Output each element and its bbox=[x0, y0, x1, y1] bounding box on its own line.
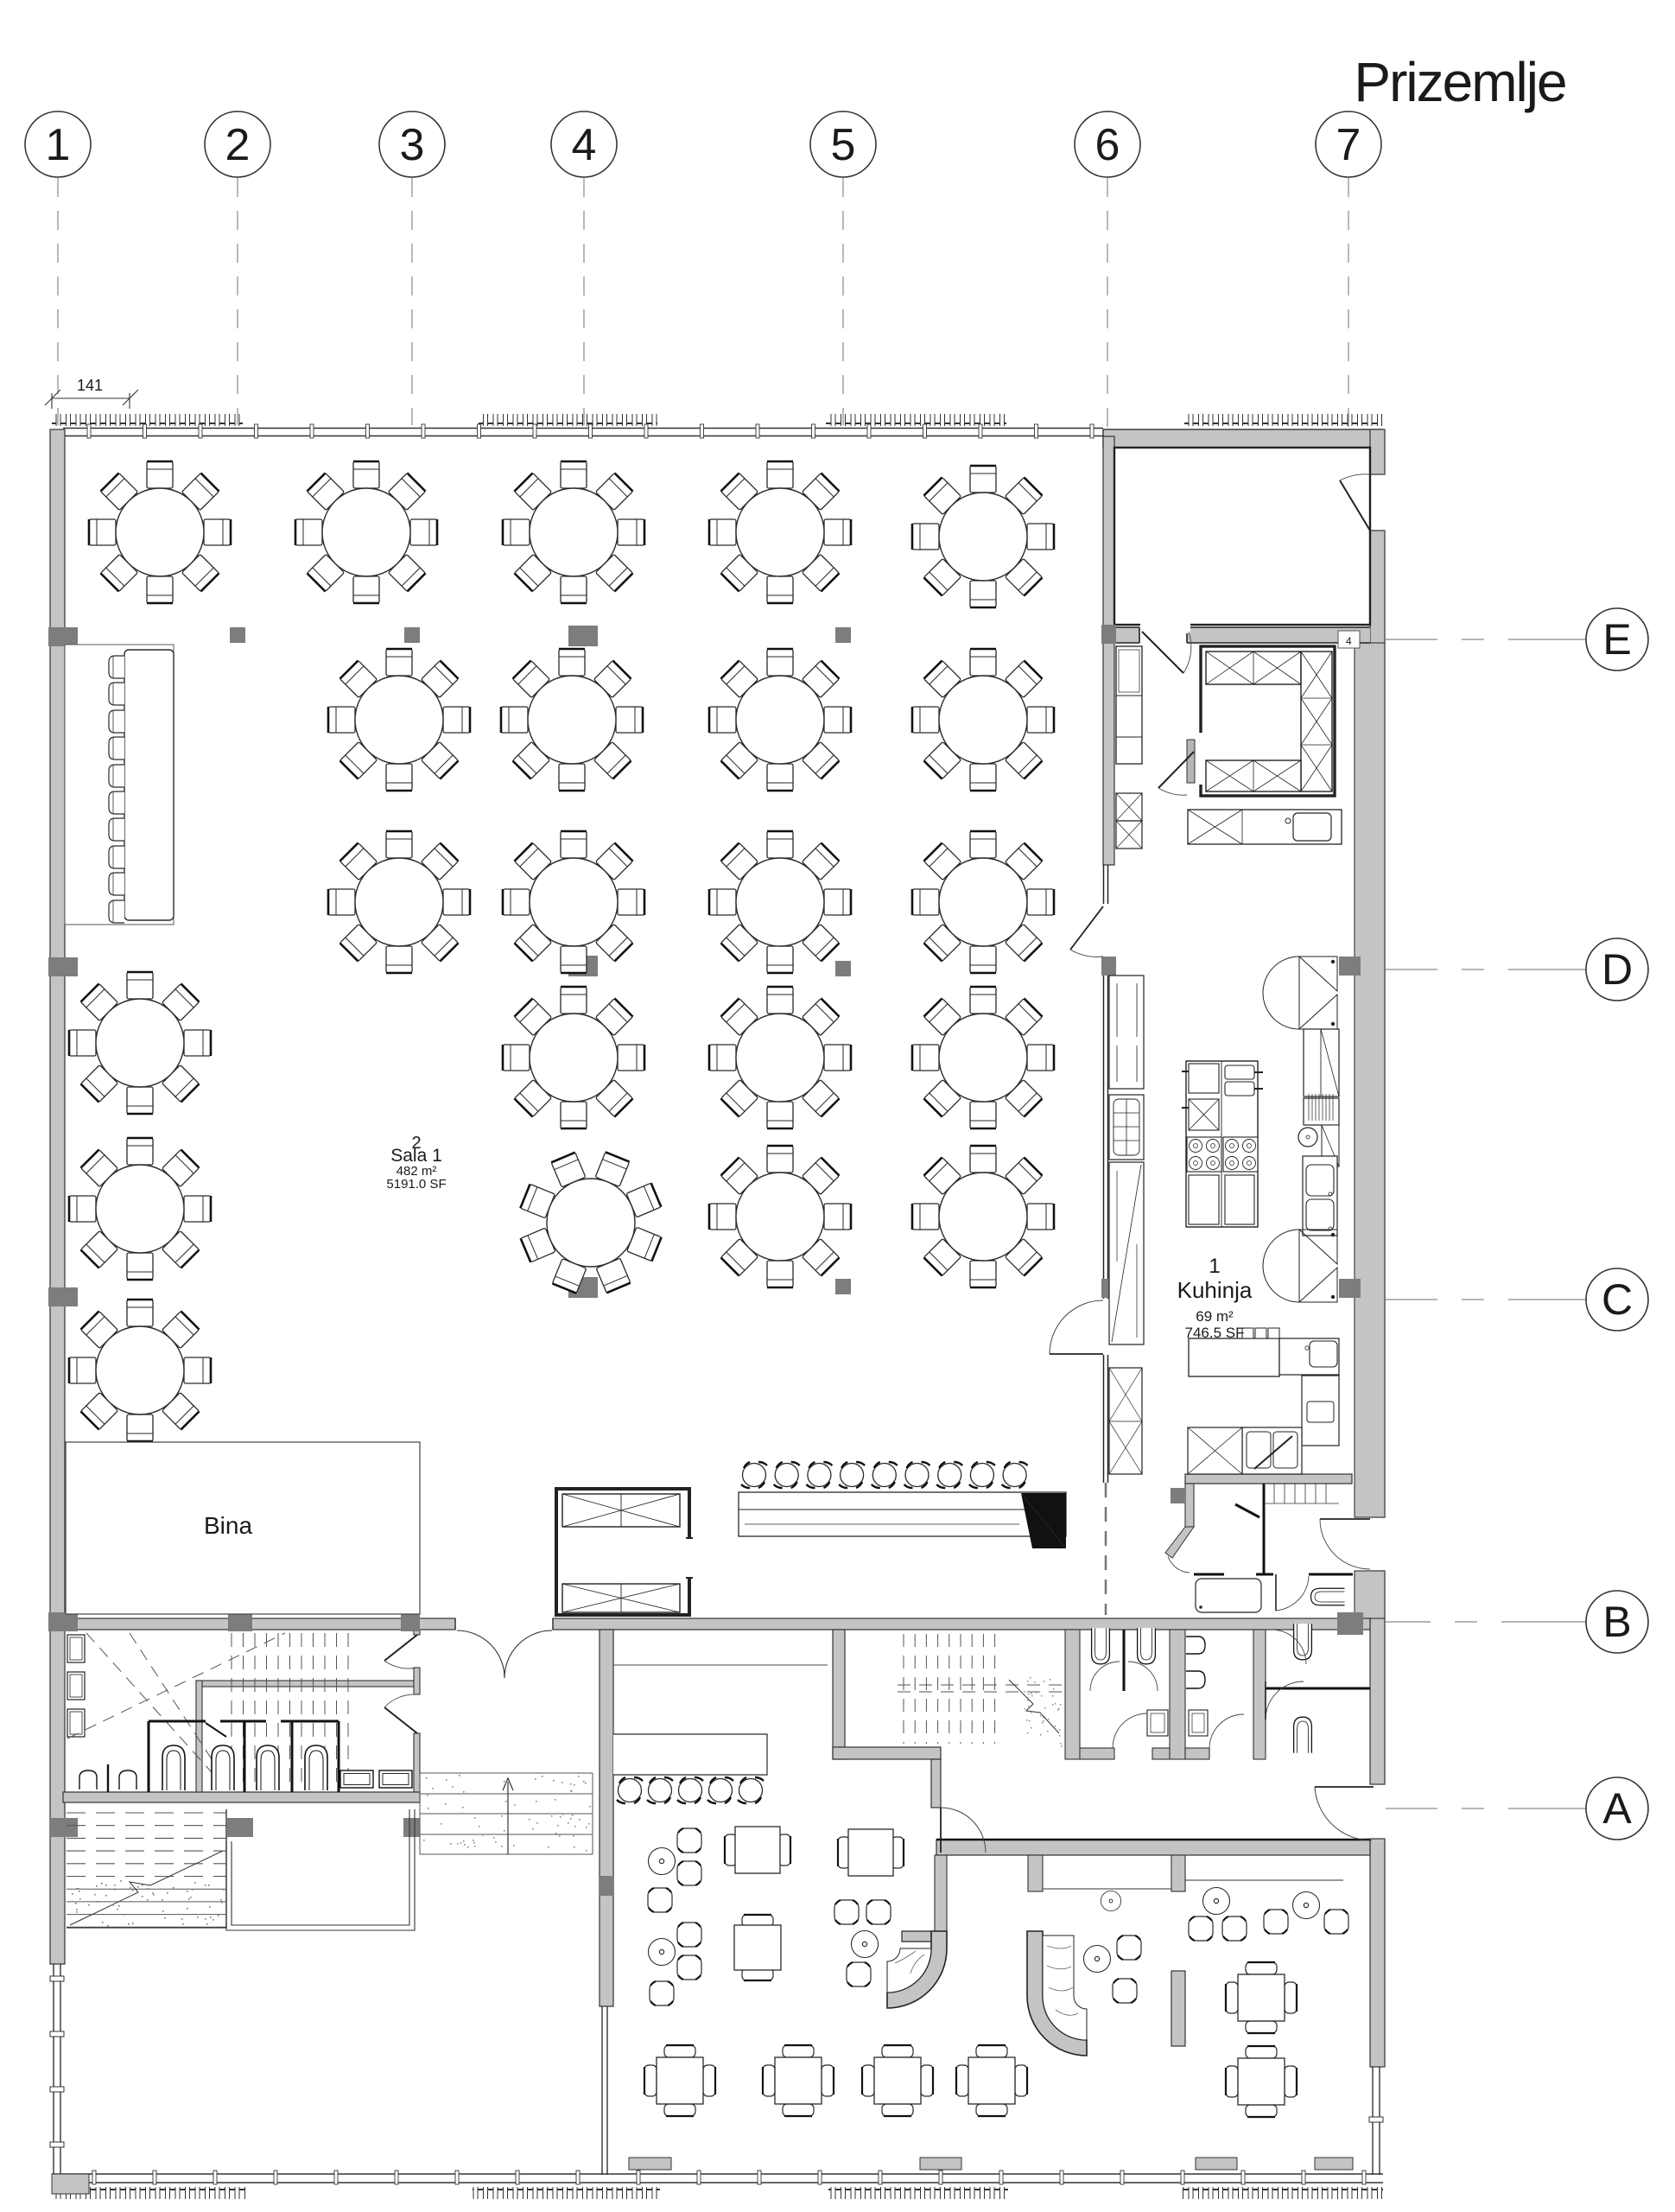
svg-text:D: D bbox=[1602, 945, 1633, 994]
svg-text:746.5 SF: 746.5 SF bbox=[1185, 1325, 1245, 1341]
svg-text:B: B bbox=[1602, 1598, 1631, 1646]
svg-text:5191.0 SF: 5191.0 SF bbox=[386, 1177, 446, 1192]
svg-text:69 m²: 69 m² bbox=[1196, 1308, 1234, 1325]
svg-text:C: C bbox=[1602, 1275, 1633, 1324]
svg-text:6: 6 bbox=[1095, 120, 1120, 170]
svg-text:1: 1 bbox=[1209, 1255, 1220, 1278]
svg-text:3: 3 bbox=[400, 120, 425, 170]
svg-text:Prizemlje: Prizemlje bbox=[1354, 51, 1565, 113]
svg-text:Sala 1: Sala 1 bbox=[390, 1146, 442, 1166]
svg-text:141: 141 bbox=[77, 377, 103, 394]
svg-text:4: 4 bbox=[572, 120, 597, 170]
svg-text:1: 1 bbox=[46, 120, 71, 170]
svg-text:2: 2 bbox=[225, 120, 251, 170]
svg-text:A: A bbox=[1602, 1784, 1632, 1833]
svg-text:5: 5 bbox=[831, 120, 856, 170]
svg-text:Kuhinja: Kuhinja bbox=[1177, 1277, 1253, 1303]
svg-text:E: E bbox=[1602, 615, 1631, 664]
svg-text:4: 4 bbox=[1346, 635, 1352, 647]
svg-text:Bina: Bina bbox=[204, 1512, 252, 1539]
svg-text:7: 7 bbox=[1336, 120, 1361, 170]
